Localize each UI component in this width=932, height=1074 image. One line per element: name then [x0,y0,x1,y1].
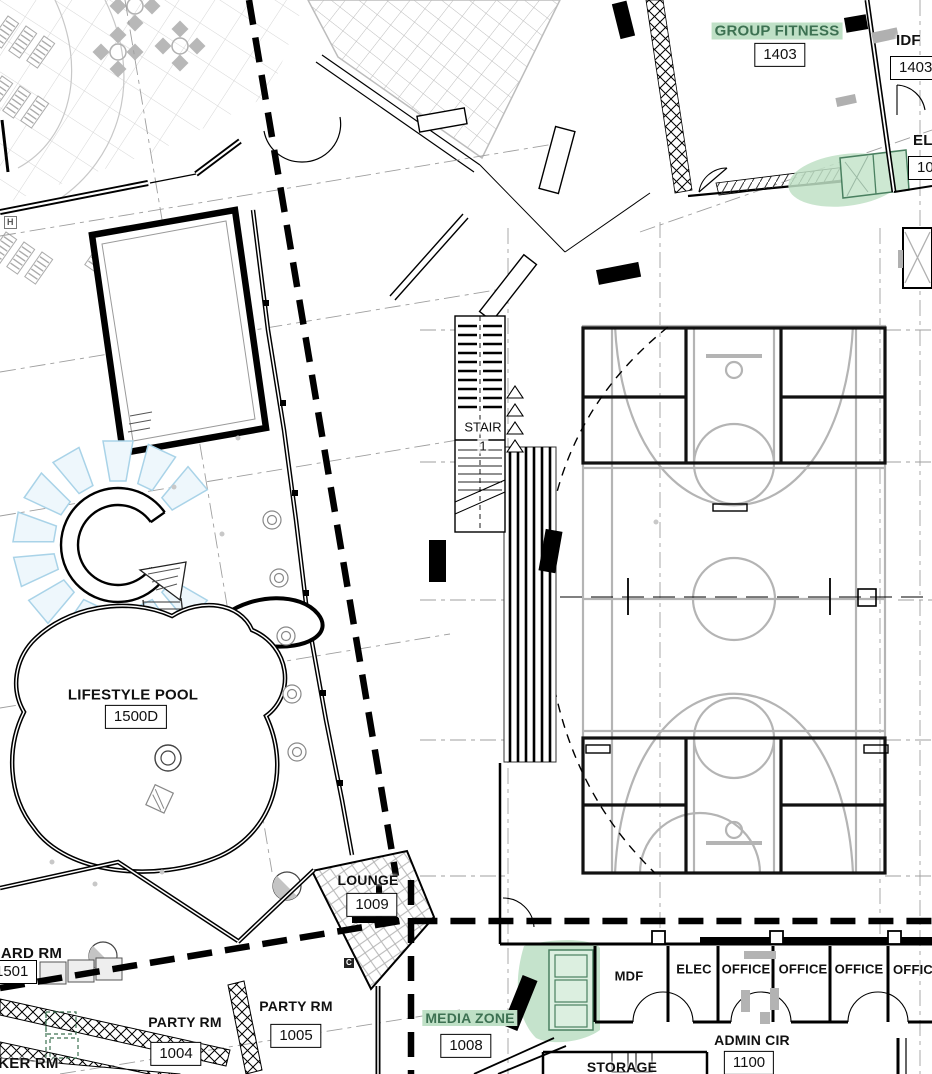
room-label-idf: IDF [896,32,921,49]
room-number-admin-cir: 1100 [724,1051,774,1074]
room-number-media-zone: 1008 [440,1034,491,1058]
room-number-idf: 1403B [890,56,932,80]
room-number-stair-1: 1 [477,439,488,454]
stair-direction-arrows [507,386,523,452]
room-label-lifestyle-pool: LIFESTYLE POOL [68,687,198,704]
room-label-admin-cir: ADMIN CIR [714,1032,790,1048]
c-keynote-marker: C [344,958,354,968]
room-label-office-2: OFFICE [779,962,828,977]
basketball-court [545,326,932,873]
room-label-elec: ELEC [676,962,711,977]
floor-plan-sheet: GROUP FITNESS 1403 IDF 1403B EL 10 STAIR… [0,0,932,1074]
room-label-elev: EL [913,132,932,149]
lifestyle-pool-basin [12,598,322,871]
media-zone [474,940,600,1074]
room-number-lifestyle-pool: 1500D [105,705,167,729]
room-label-locker-rm: LOCKER RM [0,1055,59,1072]
room-label-office-4: OFFICE [893,962,932,977]
room-number-party-rm-1005: 1005 [270,1024,321,1048]
room-number-party-rm-1004: 1004 [150,1042,201,1066]
room-number-lounge: 1009 [346,893,397,917]
lap-pool [92,210,266,453]
h-marker: H [4,216,17,229]
room-number-elev: 10 [908,156,932,180]
room-label-mdf: MDF [615,969,644,984]
room-label-media-zone: MEDIA ZONE [422,1010,517,1026]
room-label-party-rm-1005: PARTY RM [259,998,332,1014]
terrace [308,0,650,252]
room-label-office-1: OFFICE [722,962,771,977]
room-label-storage: STORAGE [587,1059,657,1074]
room-number-group-fitness: 1403 [754,43,805,67]
room-label-office-3: OFFICE [835,962,884,977]
room-label-group-fitness: GROUP FITNESS [712,23,843,40]
room-number-guard-rm: 1501 [0,960,37,984]
room-label-lounge: LOUNGE [337,872,398,888]
room-label-party-rm-1004: PARTY RM [148,1014,221,1030]
room-label-stair-1: STAIR [462,420,503,435]
floor-plan-drawing [0,0,932,1074]
